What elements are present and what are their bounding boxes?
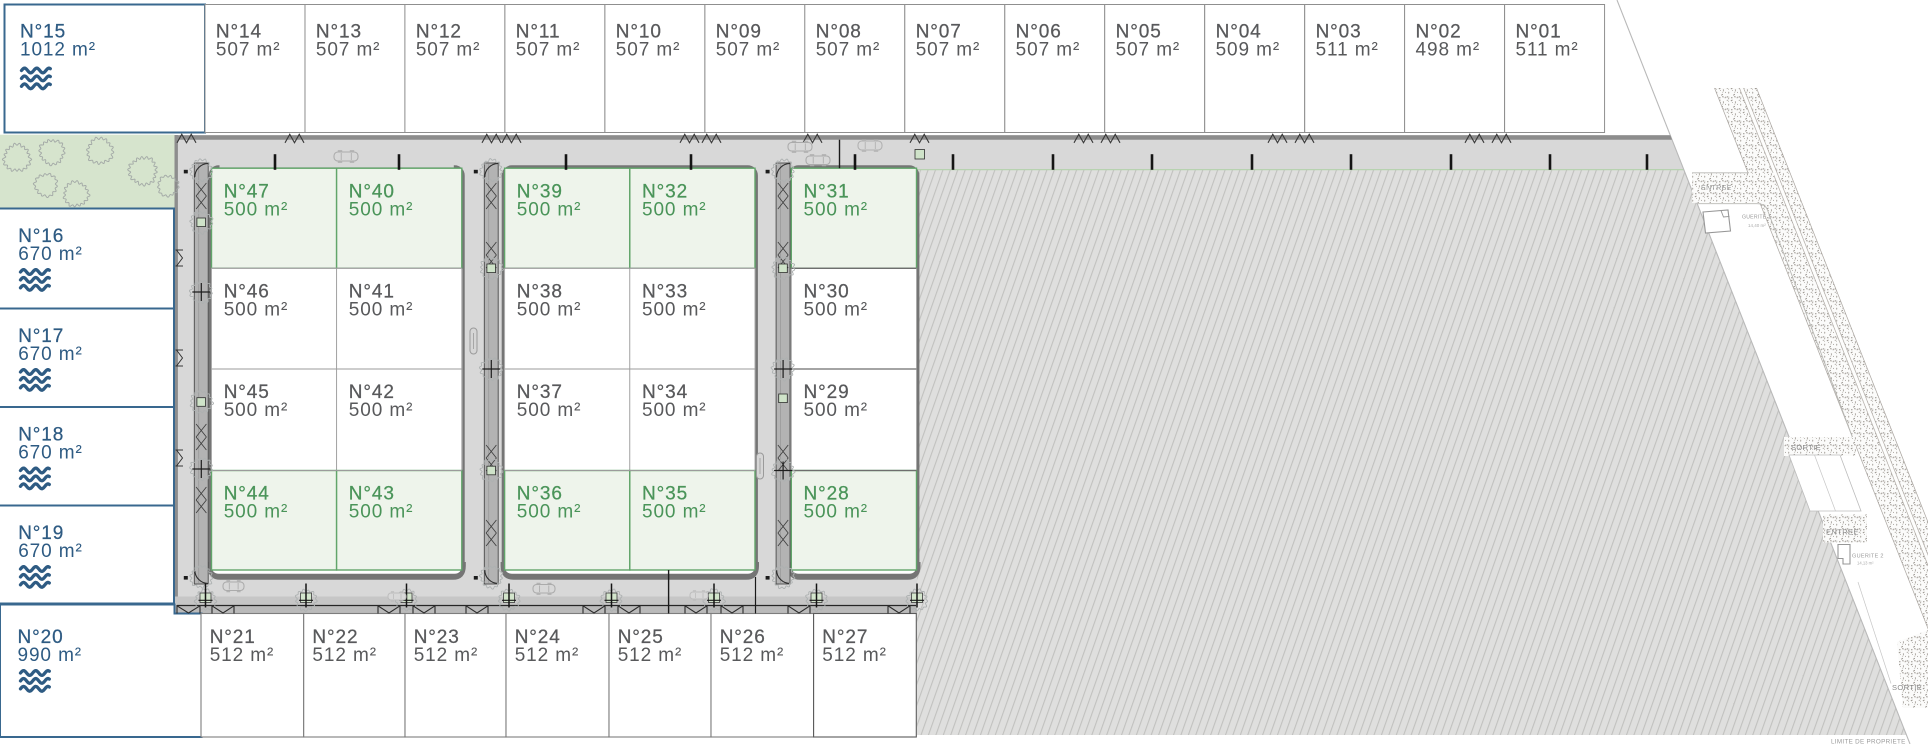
svg-text:500 m²: 500 m² (224, 502, 289, 523)
svg-text:670 m²: 670 m² (18, 344, 83, 365)
svg-text:507 m²: 507 m² (916, 39, 981, 60)
svg-text:512 m²: 512 m² (515, 645, 580, 666)
svg-text:670 m²: 670 m² (18, 244, 83, 265)
svg-text:500 m²: 500 m² (804, 502, 869, 523)
svg-text:500 m²: 500 m² (642, 199, 707, 220)
svg-text:14,40 m²: 14,40 m² (1748, 223, 1766, 228)
svg-text:498 m²: 498 m² (1416, 39, 1481, 60)
svg-text:500 m²: 500 m² (642, 502, 707, 523)
svg-text:511 m²: 511 m² (1316, 39, 1379, 60)
svg-text:500 m²: 500 m² (517, 400, 582, 421)
svg-text:670 m²: 670 m² (18, 541, 83, 562)
svg-text:SORTIE: SORTIE (1791, 443, 1821, 452)
svg-text:500 m²: 500 m² (642, 300, 707, 321)
svg-text:500 m²: 500 m² (349, 502, 414, 523)
svg-text:507 m²: 507 m² (316, 39, 381, 60)
svg-text:512 m²: 512 m² (822, 645, 887, 666)
svg-text:1012 m²: 1012 m² (20, 39, 96, 60)
svg-text:500 m²: 500 m² (804, 199, 869, 220)
svg-text:500 m²: 500 m² (349, 300, 414, 321)
svg-text:500 m²: 500 m² (642, 400, 707, 421)
svg-text:14,13 m²: 14,13 m² (1857, 561, 1874, 566)
svg-text:SORTIE: SORTIE (1892, 683, 1922, 692)
svg-text:500 m²: 500 m² (517, 502, 582, 523)
svg-text:512 m²: 512 m² (312, 645, 377, 666)
svg-text:500 m²: 500 m² (517, 199, 582, 220)
svg-text:507 m²: 507 m² (216, 39, 281, 60)
svg-text:509 m²: 509 m² (1216, 39, 1281, 60)
svg-text:507 m²: 507 m² (1116, 39, 1181, 60)
svg-text:990 m²: 990 m² (18, 645, 83, 666)
svg-text:500 m²: 500 m² (224, 199, 289, 220)
svg-text:507 m²: 507 m² (716, 39, 781, 60)
svg-text:GUERITE 1: GUERITE 1 (1742, 215, 1771, 221)
svg-text:670 m²: 670 m² (18, 443, 83, 464)
svg-text:507 m²: 507 m² (616, 39, 681, 60)
svg-text:507 m²: 507 m² (516, 39, 581, 60)
svg-text:512 m²: 512 m² (720, 645, 785, 666)
svg-text:ENTREE: ENTREE (1826, 528, 1859, 537)
svg-text:500 m²: 500 m² (224, 400, 289, 421)
svg-text:512 m²: 512 m² (210, 645, 275, 666)
svg-text:GUERITE 2: GUERITE 2 (1852, 554, 1884, 560)
svg-text:507 m²: 507 m² (816, 39, 881, 60)
svg-text:500 m²: 500 m² (804, 400, 869, 421)
svg-text:507 m²: 507 m² (1016, 39, 1081, 60)
svg-text:LIMITE DE PROPRIETE: LIMITE DE PROPRIETE (1831, 739, 1906, 744)
svg-text:500 m²: 500 m² (349, 199, 414, 220)
svg-text:511 m²: 511 m² (1516, 39, 1579, 60)
svg-text:500 m²: 500 m² (517, 300, 582, 321)
svg-text:512 m²: 512 m² (618, 645, 683, 666)
svg-text:ENTREE: ENTREE (1701, 185, 1732, 192)
svg-text:507 m²: 507 m² (416, 39, 481, 60)
svg-text:500 m²: 500 m² (224, 300, 289, 321)
svg-text:500 m²: 500 m² (349, 400, 414, 421)
svg-text:512 m²: 512 m² (414, 645, 479, 666)
svg-text:500 m²: 500 m² (804, 300, 869, 321)
